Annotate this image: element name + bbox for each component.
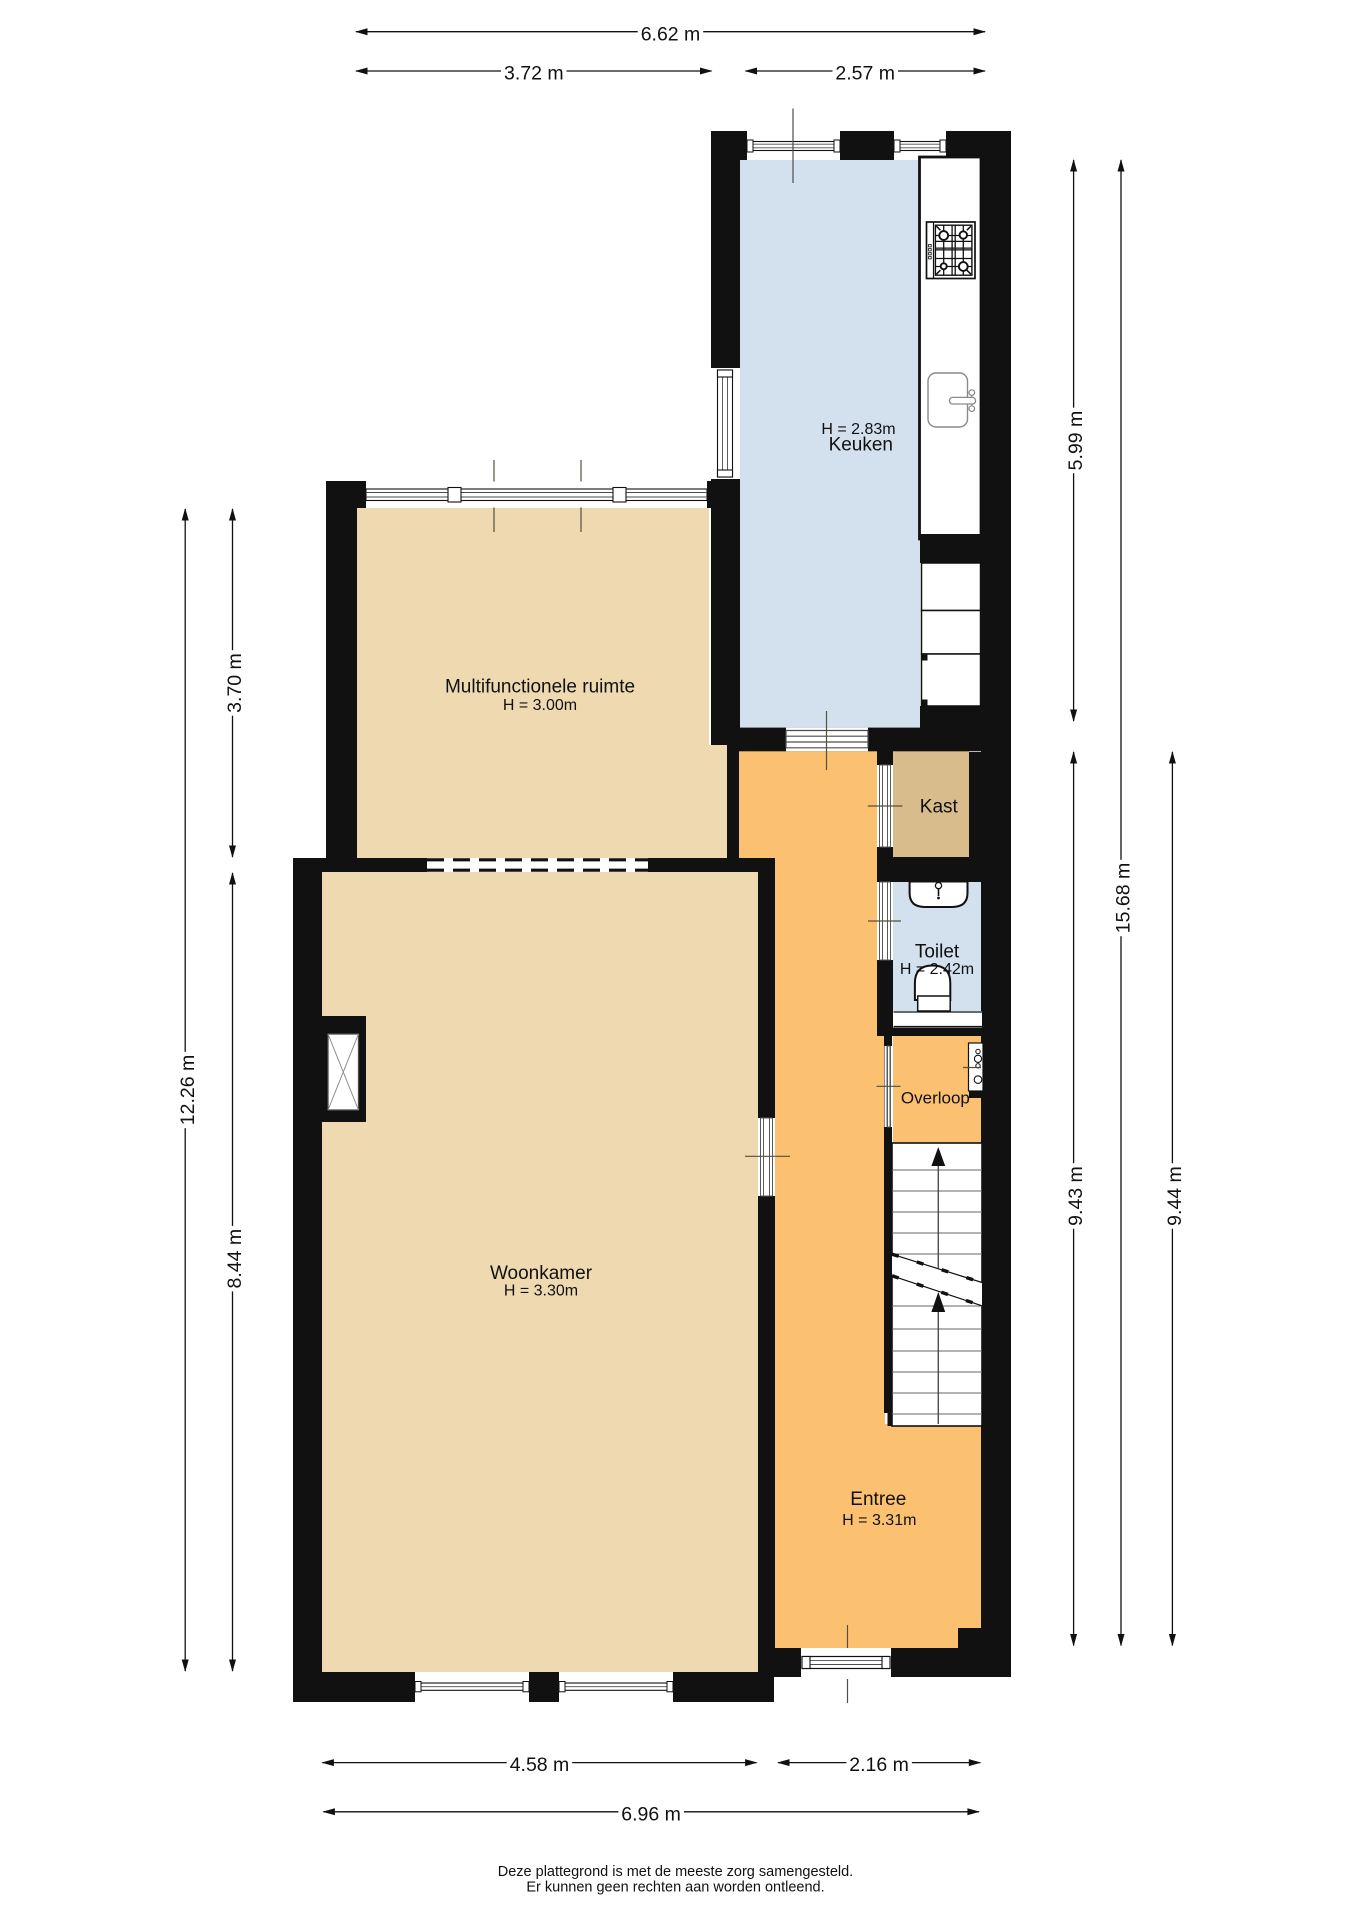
svg-text:Entree: Entree [850, 1489, 906, 1510]
svg-text:3.70 m: 3.70 m [224, 653, 246, 713]
svg-text:9.43 m: 9.43 m [1065, 1166, 1087, 1226]
svg-text:4.58 m: 4.58 m [510, 1754, 570, 1776]
svg-text:6.96 m: 6.96 m [621, 1803, 681, 1825]
svg-text:H = 3.00m: H = 3.00m [503, 697, 577, 714]
svg-text:Kast: Kast [920, 797, 959, 818]
svg-text:2.16 m: 2.16 m [849, 1754, 909, 1776]
svg-text:Multifunctionele ruimte: Multifunctionele ruimte [445, 677, 635, 698]
svg-text:5.99 m: 5.99 m [1065, 411, 1087, 471]
svg-text:2.57 m: 2.57 m [835, 63, 895, 85]
svg-text:9.44 m: 9.44 m [1164, 1166, 1186, 1226]
svg-text:H = 3.30m: H = 3.30m [504, 1283, 578, 1300]
svg-text:15.68 m: 15.68 m [1113, 863, 1135, 933]
svg-text:3.72 m: 3.72 m [504, 63, 564, 85]
svg-text:Overloop: Overloop [901, 1089, 970, 1108]
svg-text:Toilet: Toilet [915, 942, 960, 963]
svg-text:8.44 m: 8.44 m [224, 1229, 246, 1289]
svg-text:Deze plattegrond is met de mee: Deze plattegrond is met de meeste zorg s… [498, 1864, 853, 1880]
svg-text:12.26 m: 12.26 m [177, 1055, 199, 1125]
svg-text:Keuken: Keuken [829, 434, 893, 455]
svg-text:Woonkamer: Woonkamer [490, 1263, 593, 1284]
svg-text:H = 2.42m: H = 2.42m [900, 961, 974, 978]
svg-text:6.62 m: 6.62 m [641, 23, 701, 45]
svg-text:H = 3.31m: H = 3.31m [842, 1512, 916, 1529]
svg-text:Er kunnen geen rechten aan wor: Er kunnen geen rechten aan worden ontlee… [526, 1880, 824, 1896]
